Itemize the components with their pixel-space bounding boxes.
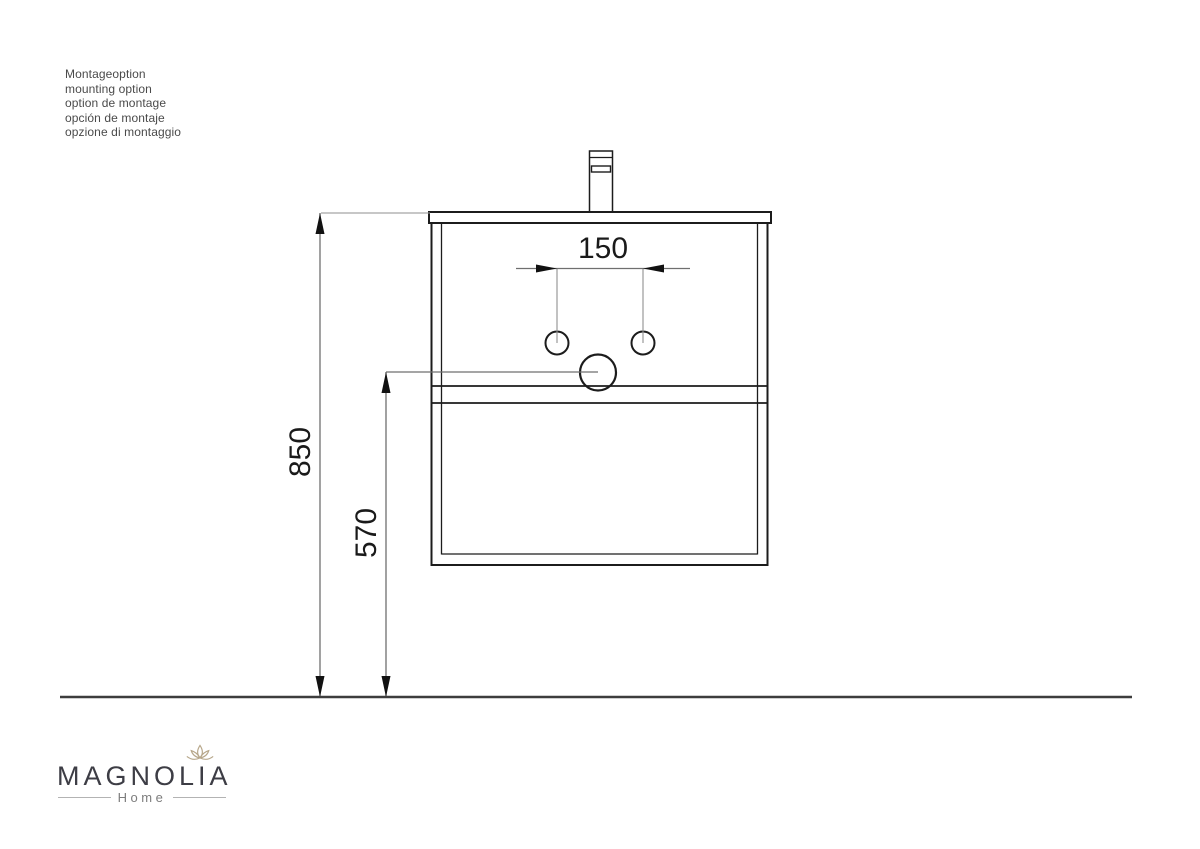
brand-name: MAGNOLIA <box>57 761 232 792</box>
faucet <box>590 151 613 212</box>
vanity-technical-drawing: 150 850 570 <box>0 0 1200 849</box>
arrowhead-right-icon <box>536 265 557 273</box>
dimension-hole-spacing: 150 <box>516 232 690 343</box>
arrowhead-up-icon <box>316 213 325 234</box>
dim-hole-spacing-label: 150 <box>578 232 628 265</box>
arrowhead-left-icon <box>643 265 664 273</box>
dim-total-height-label: 850 <box>284 427 317 477</box>
faucet-lever <box>592 166 611 172</box>
subtitle-rule-right <box>173 797 226 798</box>
arrowhead-down-icon <box>382 676 391 697</box>
subtitle-rule-left <box>58 797 111 798</box>
arrowhead-up-icon <box>382 372 391 393</box>
dim-drain-height-label: 570 <box>350 508 383 558</box>
drawing-sheet: Montageoption mounting option option de … <box>0 0 1200 849</box>
arrowhead-down-icon <box>316 676 325 697</box>
cabinet <box>431 223 769 566</box>
brand-subtitle: Home <box>118 790 167 805</box>
dimension-total-height: 850 <box>284 213 430 697</box>
faucet-body <box>590 151 613 212</box>
washbasin-countertop <box>429 212 771 223</box>
dimension-drain-height: 570 <box>350 372 598 697</box>
brand-subtitle-row: Home <box>58 790 226 805</box>
